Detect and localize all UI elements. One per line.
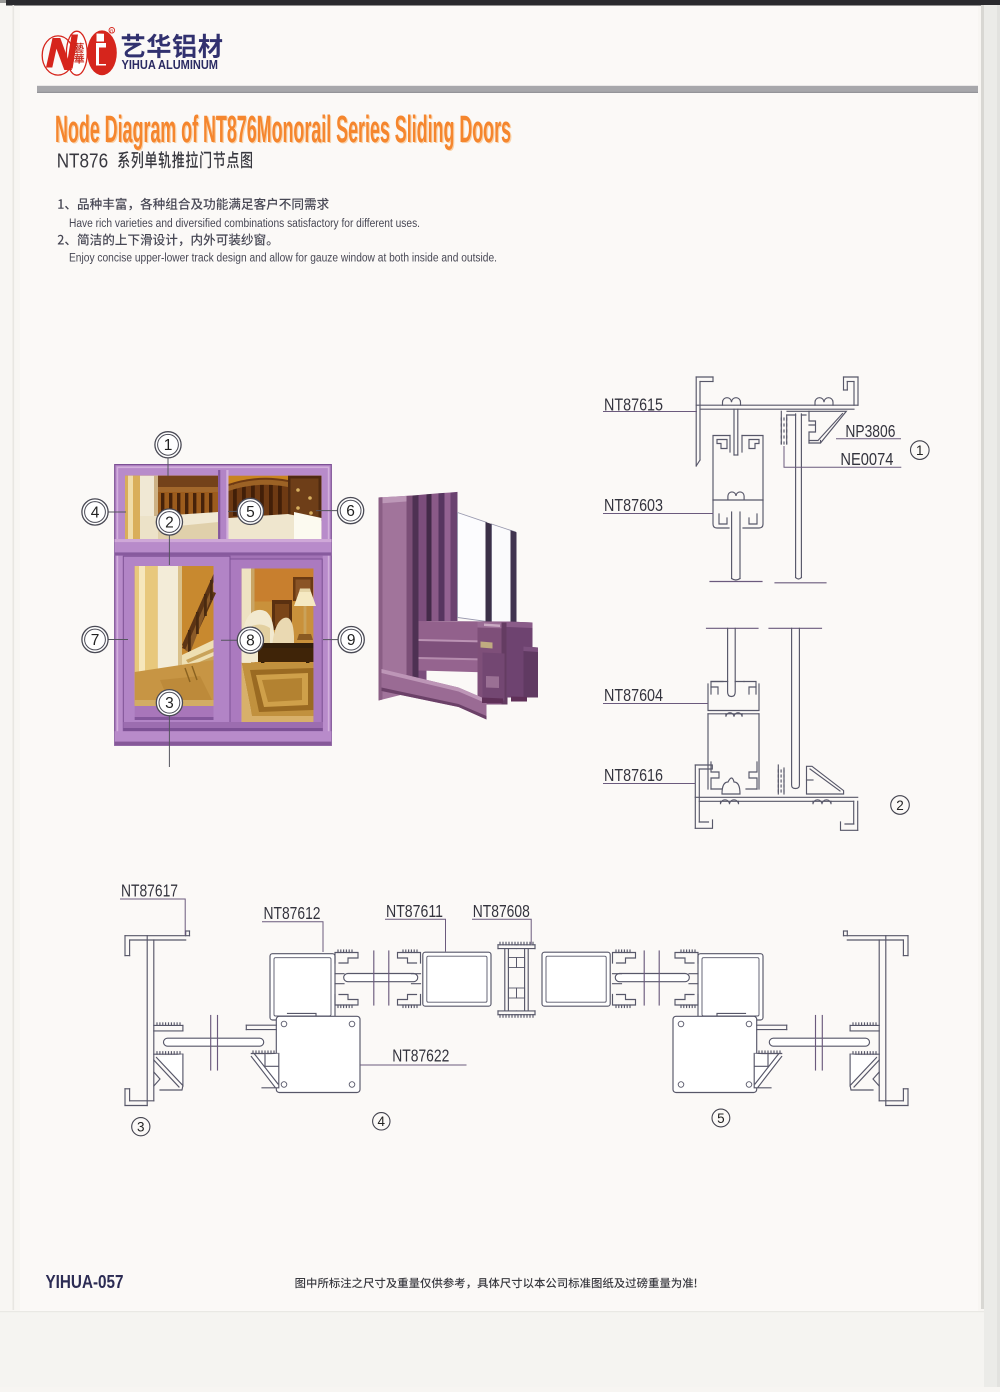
svg-text:NE0074: NE0074 [840,449,893,469]
svg-text:9: 9 [347,632,356,649]
svg-text:2: 2 [896,798,904,813]
svg-text:1: 1 [916,443,924,458]
svg-text:NT87604: NT87604 [604,685,663,705]
svg-text:YIHUA ALUMINUM: YIHUA ALUMINUM [122,58,219,72]
svg-text:NT87622: NT87622 [392,1046,449,1066]
svg-text:7: 7 [91,632,100,649]
svg-text:NT87616: NT87616 [604,765,663,785]
svg-text:6: 6 [346,503,355,520]
svg-text:4: 4 [91,504,100,521]
svg-text:NT87608: NT87608 [473,901,530,921]
svg-text:NT87603: NT87603 [604,495,663,515]
svg-text:NT87611: NT87611 [386,901,443,921]
svg-text:3: 3 [137,1120,145,1135]
svg-text:Node Diagram of NT876Monorail: Node Diagram of NT876Monorail Series Sli… [55,109,511,151]
svg-text:NT87615: NT87615 [604,394,663,414]
svg-text:NT87617: NT87617 [121,881,178,901]
svg-text:5: 5 [717,1111,725,1126]
svg-text:YIHUA-057: YIHUA-057 [46,1272,124,1292]
svg-text:Enjoy concise upper-lower trac: Enjoy concise upper-lower track design a… [69,253,497,265]
svg-text:1: 1 [164,437,173,454]
svg-text:NT87612: NT87612 [264,903,321,923]
svg-text:3: 3 [165,695,174,712]
svg-text:Have rich varieties and divers: Have rich varieties and diversified comb… [69,218,420,230]
svg-text:NP3806: NP3806 [845,421,895,441]
svg-text:4: 4 [378,1114,386,1129]
svg-text:5: 5 [246,504,255,521]
svg-text:2: 2 [165,514,174,531]
svg-text:NT876: NT876 [57,150,108,172]
svg-text:8: 8 [246,633,255,650]
